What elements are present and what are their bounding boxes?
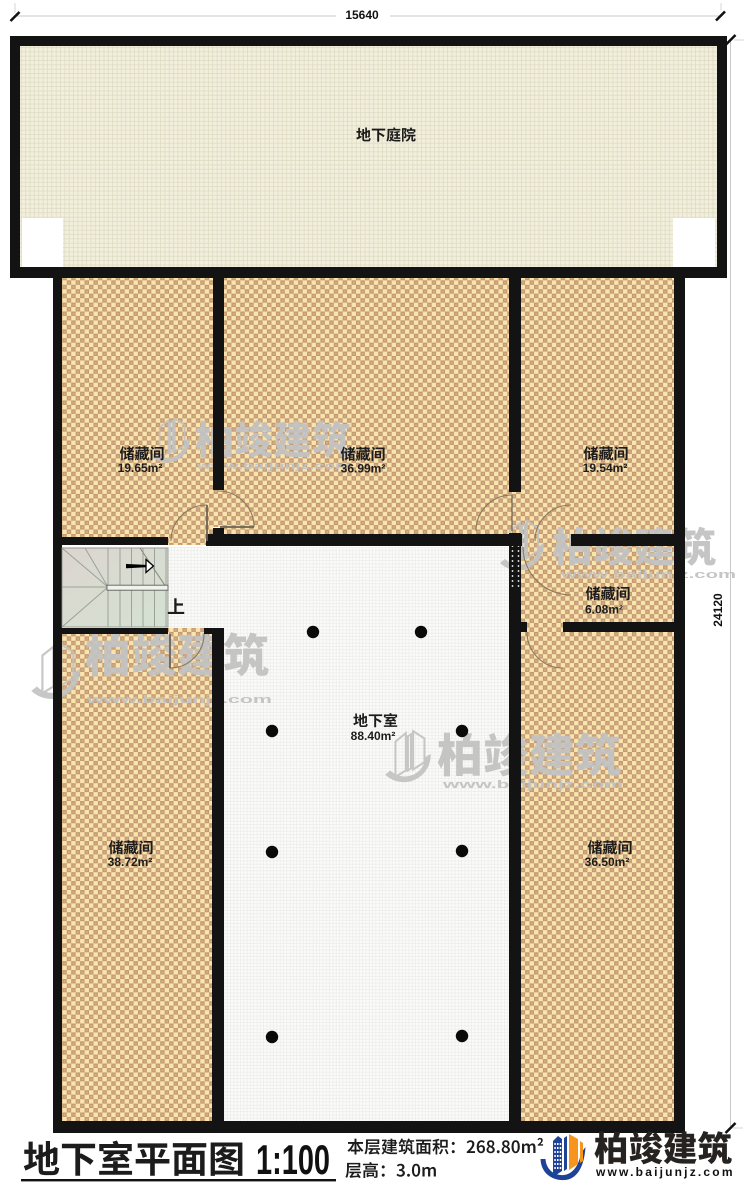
- svg-text:6.08m²: 6.08m²: [585, 603, 623, 617]
- svg-text:www.baijunjz.com: www.baijunjz.com: [559, 569, 736, 581]
- svg-text:www.baijunjz.com: www.baijunjz.com: [595, 1165, 734, 1179]
- svg-text:36.50m²: 36.50m²: [585, 855, 630, 869]
- svg-text:15640: 15640: [345, 8, 379, 22]
- svg-text:19.54m²: 19.54m²: [583, 461, 628, 475]
- svg-text:www.baijunjz.com: www.baijunjz.com: [85, 694, 272, 706]
- svg-text:88.40m²: 88.40m²: [351, 729, 396, 743]
- svg-text:www.baijunjz.com: www.baijunjz.com: [441, 779, 623, 791]
- svg-text:38.72m²: 38.72m²: [108, 855, 153, 869]
- svg-text:1:100: 1:100: [256, 1136, 330, 1183]
- svg-text:36.99m²: 36.99m²: [341, 462, 386, 476]
- svg-text:19.65m²: 19.65m²: [118, 461, 163, 475]
- svg-text:24120: 24120: [711, 593, 725, 627]
